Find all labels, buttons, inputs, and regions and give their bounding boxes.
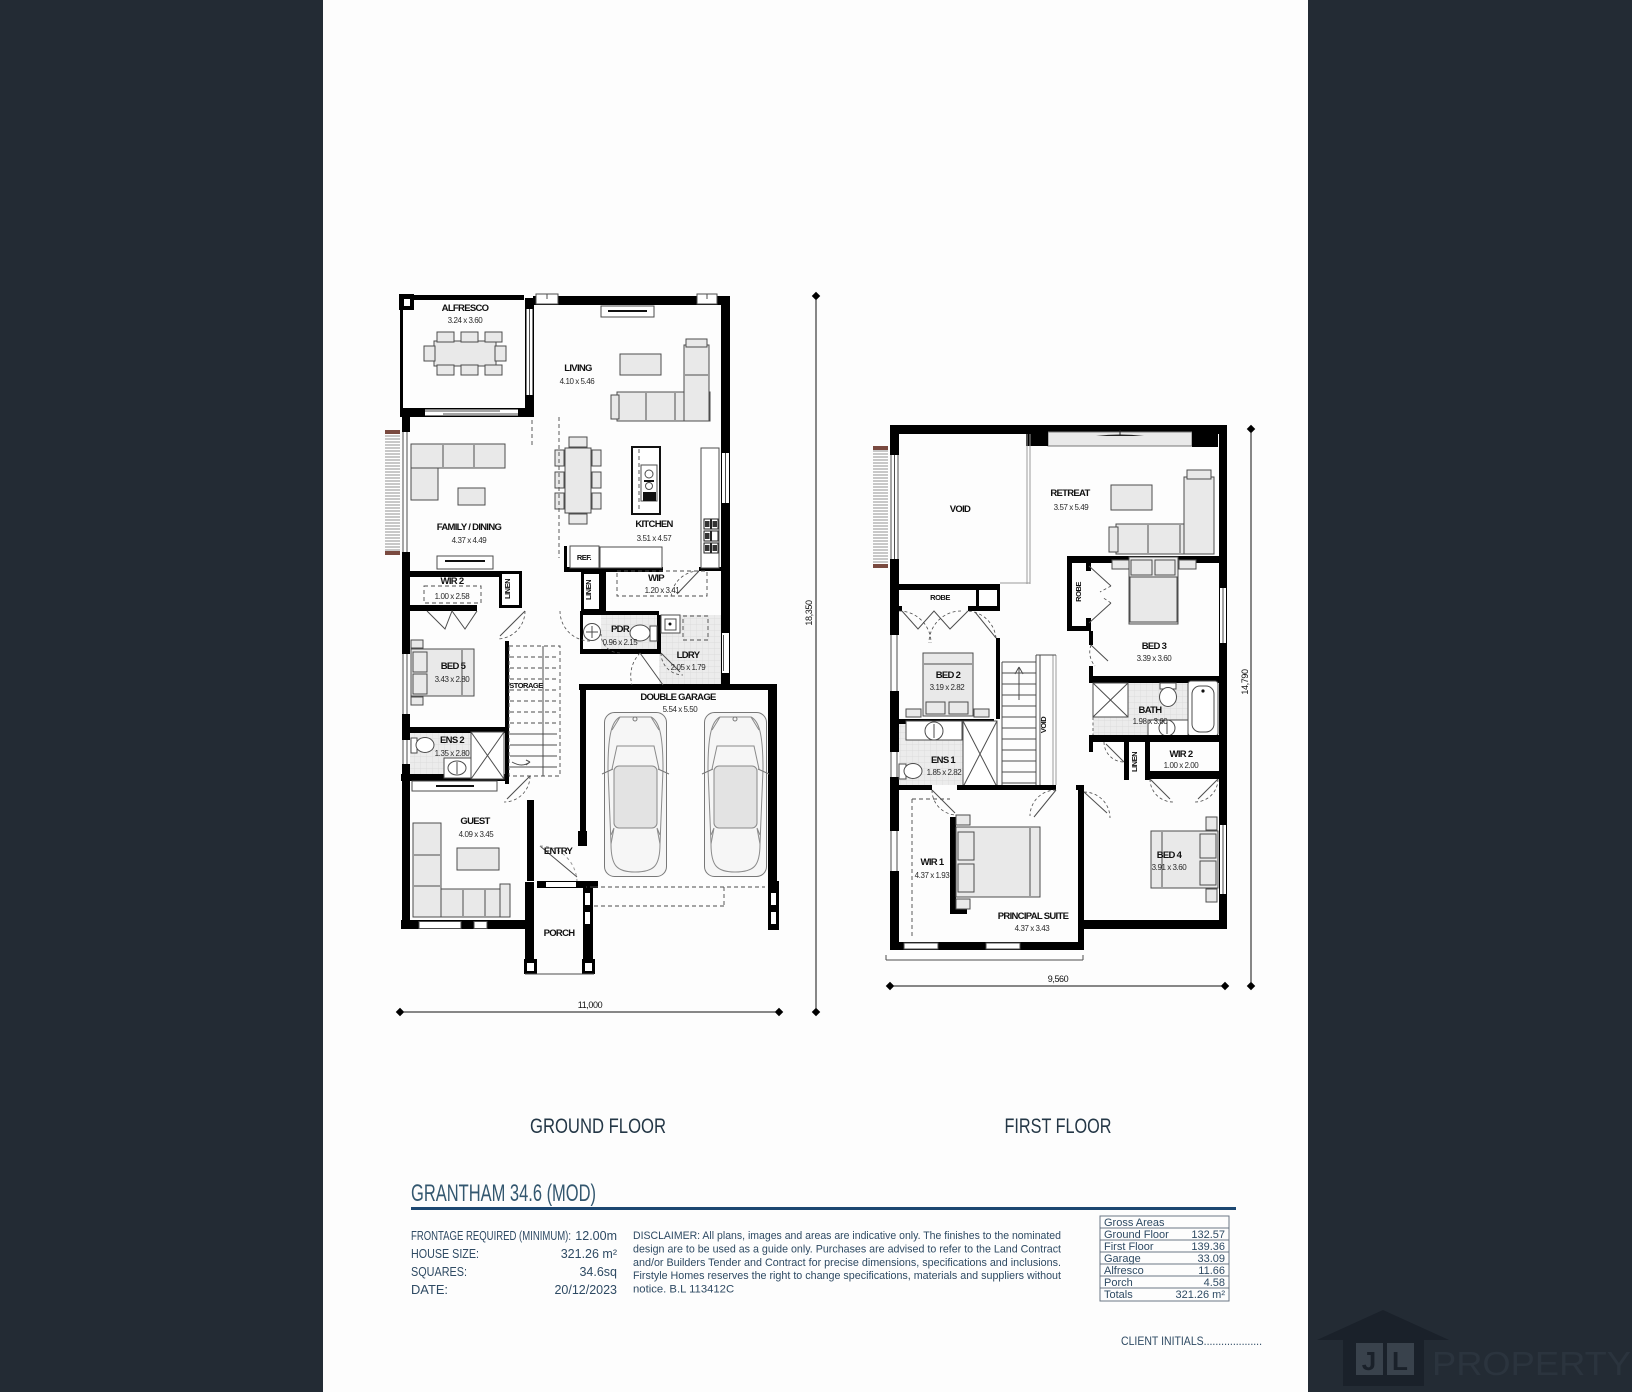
svg-text:3.24 x 3.60: 3.24 x 3.60: [448, 316, 484, 325]
svg-text:LINEN: LINEN: [503, 579, 512, 599]
svg-text:SQUARES:: SQUARES:: [411, 1265, 467, 1279]
svg-text:FAMILY / DINING: FAMILY / DINING: [437, 522, 502, 533]
svg-text:34.6sq: 34.6sq: [579, 1265, 617, 1279]
svg-text:ENTRY: ENTRY: [544, 846, 574, 857]
svg-text:Porch: Porch: [1104, 1277, 1133, 1289]
svg-text:LIVING: LIVING: [564, 363, 592, 374]
svg-text:BED 3: BED 3: [1142, 641, 1167, 652]
svg-text:L: L: [1392, 1346, 1408, 1376]
svg-text:3.91 x 3.60: 3.91 x 3.60: [1152, 863, 1188, 872]
svg-text:J: J: [1362, 1346, 1376, 1376]
svg-text:3.43 x 2.80: 3.43 x 2.80: [435, 675, 471, 684]
svg-text:4.37 x 1.93: 4.37 x 1.93: [915, 871, 951, 880]
svg-text:First Floor: First Floor: [1104, 1241, 1154, 1253]
svg-text:notice. B.L 113412C: notice. B.L 113412C: [633, 1284, 734, 1296]
svg-text:14,790: 14,790: [1240, 669, 1250, 695]
svg-text:4.09 x 3.45: 4.09 x 3.45: [459, 830, 495, 839]
svg-text:VOID: VOID: [1039, 716, 1048, 733]
svg-text:LINEN: LINEN: [1130, 752, 1139, 772]
svg-text:STORAGE: STORAGE: [509, 681, 543, 690]
svg-text:18,350: 18,350: [804, 600, 814, 626]
svg-text:PDR: PDR: [611, 624, 630, 635]
svg-text:WIR 2: WIR 2: [1170, 749, 1193, 760]
svg-text:WIR 2: WIR 2: [441, 576, 464, 587]
svg-text:ROBE: ROBE: [930, 593, 950, 602]
svg-text:GROUND FLOOR: GROUND FLOOR: [530, 1114, 666, 1138]
svg-text:Ground Floor: Ground Floor: [1104, 1229, 1169, 1241]
svg-text:1.20 x 3.41: 1.20 x 3.41: [645, 586, 681, 595]
svg-text:1.00 x 2.00: 1.00 x 2.00: [1164, 761, 1200, 770]
svg-text:139.36: 139.36: [1191, 1241, 1225, 1253]
svg-text:33.09: 33.09: [1197, 1253, 1225, 1265]
svg-text:4.37 x 4.49: 4.37 x 4.49: [452, 536, 488, 545]
svg-text:3.19 x 2.82: 3.19 x 2.82: [930, 683, 966, 692]
svg-text:PRINCIPAL SUITE: PRINCIPAL SUITE: [998, 911, 1069, 922]
svg-text:ENS 1: ENS 1: [931, 755, 956, 766]
svg-text:DISCLAIMER: All plans, images: DISCLAIMER: All plans, images and areas …: [633, 1230, 1061, 1242]
svg-text:3.51 x 4.57: 3.51 x 4.57: [637, 534, 673, 543]
svg-text:4.58: 4.58: [1204, 1277, 1225, 1289]
svg-text:BED 4: BED 4: [1157, 850, 1183, 861]
svg-text:1.35 x 2.80: 1.35 x 2.80: [435, 749, 471, 758]
svg-text:ENS 2: ENS 2: [440, 735, 464, 746]
svg-text:BED 2: BED 2: [936, 670, 961, 681]
svg-text:and/or Builders Tender and Con: and/or Builders Tender and Contract for …: [633, 1257, 1061, 1269]
svg-text:ROBE: ROBE: [1074, 582, 1083, 602]
svg-text:VOID: VOID: [950, 504, 971, 515]
svg-text:9,560: 9,560: [1048, 974, 1069, 984]
svg-text:design are to be used as a gui: design are to be used as a guide only. P…: [633, 1243, 1062, 1255]
svg-text:132.57: 132.57: [1191, 1229, 1225, 1241]
svg-text:321.26 m²: 321.26 m²: [561, 1247, 617, 1261]
svg-text:DOUBLE GARAGE: DOUBLE GARAGE: [640, 692, 716, 703]
svg-text:FIRST FLOOR: FIRST FLOOR: [1005, 1114, 1112, 1138]
svg-text:5.54 x 5.50: 5.54 x 5.50: [663, 705, 699, 714]
svg-text:WIR 1: WIR 1: [921, 857, 945, 868]
svg-text:BATH: BATH: [1139, 705, 1163, 716]
svg-text:4.10 x 5.46: 4.10 x 5.46: [560, 377, 596, 386]
svg-text:LINEN: LINEN: [584, 580, 593, 600]
svg-text:Totals: Totals: [1104, 1289, 1133, 1301]
svg-text:WIP: WIP: [648, 573, 665, 584]
svg-text:321.26 m²: 321.26 m²: [1175, 1289, 1225, 1301]
svg-text:FRONTAGE REQUIRED (MINIMUM):: FRONTAGE REQUIRED (MINIMUM):: [411, 1229, 571, 1243]
svg-text:Gross Areas: Gross Areas: [1104, 1217, 1165, 1229]
svg-text:3.57 x 5.49: 3.57 x 5.49: [1054, 503, 1090, 512]
svg-text:KITCHEN: KITCHEN: [635, 519, 673, 530]
svg-text:DATE:: DATE:: [411, 1283, 448, 1297]
svg-text:2.05 x 1.79: 2.05 x 1.79: [671, 663, 707, 672]
svg-text:GRANTHAM 34.6 (MOD): GRANTHAM 34.6 (MOD): [411, 1180, 596, 1207]
svg-text:20/12/2023: 20/12/2023: [554, 1283, 617, 1297]
svg-text:BED 5: BED 5: [441, 661, 467, 672]
svg-text:ALFRESCO: ALFRESCO: [442, 303, 489, 314]
svg-text:0.96 x 2.15: 0.96 x 2.15: [603, 638, 639, 647]
svg-text:RETREAT: RETREAT: [1050, 488, 1090, 499]
svg-text:1.98 x 3.60: 1.98 x 3.60: [1133, 717, 1169, 726]
svg-text:1.85 x 2.82: 1.85 x 2.82: [927, 768, 963, 777]
svg-text:11,000: 11,000: [578, 1000, 603, 1010]
svg-text:3.39 x 3.60: 3.39 x 3.60: [1137, 654, 1173, 663]
svg-text:REF.: REF.: [577, 553, 592, 562]
svg-text:CLIENT INITIALS...............: CLIENT INITIALS....................: [1121, 1334, 1262, 1348]
svg-text:12.00m: 12.00m: [575, 1229, 617, 1243]
svg-text:PORCH: PORCH: [544, 928, 576, 939]
svg-text:1.00 x 2.58: 1.00 x 2.58: [435, 592, 471, 601]
svg-text:Garage: Garage: [1104, 1253, 1141, 1265]
svg-text:4.37 x 3.43: 4.37 x 3.43: [1015, 924, 1051, 933]
svg-text:Firstyle Homes reserves the ri: Firstyle Homes reserves the right to cha…: [633, 1270, 1062, 1282]
svg-text:11.66: 11.66: [1198, 1265, 1225, 1277]
svg-text:PROPERTY: PROPERTY: [1432, 1345, 1631, 1382]
svg-text:Alfresco: Alfresco: [1104, 1265, 1144, 1277]
svg-text:LDRY: LDRY: [677, 650, 701, 661]
svg-text:GUEST: GUEST: [460, 816, 490, 827]
svg-text:HOUSE SIZE:: HOUSE SIZE:: [411, 1247, 479, 1261]
